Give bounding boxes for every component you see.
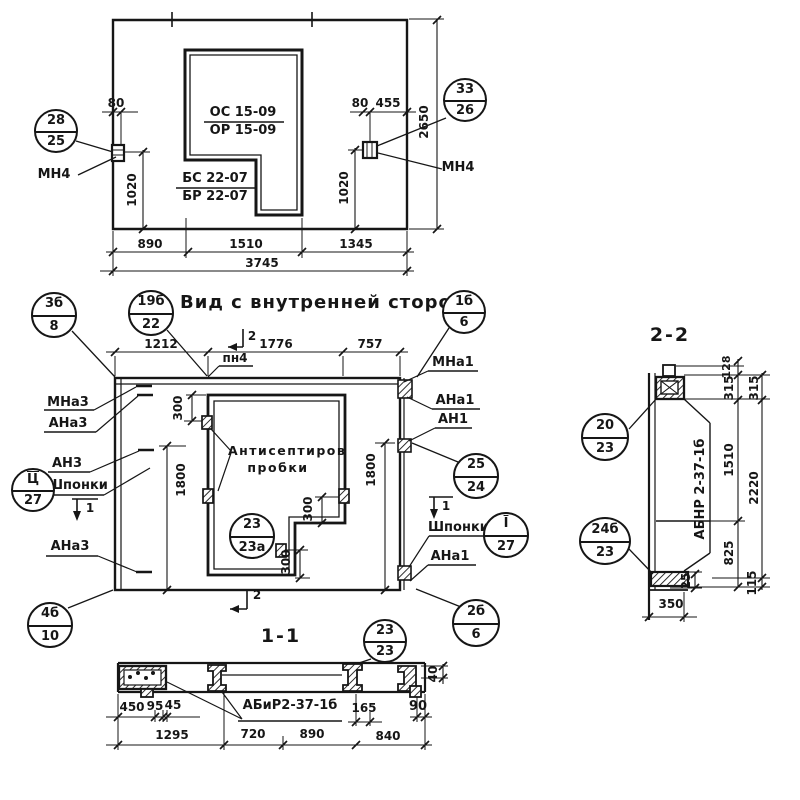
- callout-top: 2б: [454, 601, 498, 625]
- callout-top: 19б: [130, 292, 172, 315]
- dim-455: 455: [371, 96, 405, 110]
- callout-19b-22: 19б 22: [128, 290, 174, 336]
- section-marker-1-right: 1: [440, 499, 452, 513]
- callout-bottom: 27: [485, 537, 527, 557]
- callout-bottom: 26: [445, 102, 485, 121]
- note-antiseptic: Антисептиров: [228, 444, 340, 458]
- callout-28-25: 28 25: [34, 109, 78, 153]
- section-marker-2-top: 2: [245, 329, 259, 343]
- dim-350: 350: [654, 597, 688, 611]
- dim-3745: 3745: [240, 256, 284, 270]
- callout-top: I: [485, 514, 527, 537]
- note-plugs: пробки: [245, 461, 311, 475]
- dim-80-left: 80: [103, 96, 129, 110]
- dim-1020-right: 1020: [337, 168, 351, 208]
- drawing-linework: [0, 0, 800, 800]
- dim-890: 890: [133, 237, 167, 251]
- dim-1800-right: 1800: [364, 448, 378, 492]
- callout-33-26: 33 26: [443, 78, 487, 122]
- dim-300-mid: 300: [301, 491, 315, 527]
- label-shponki-right: Шпонки: [428, 521, 486, 535]
- callout-bottom: 6: [454, 625, 498, 646]
- section-2-2-title: 2-2: [645, 328, 695, 342]
- dim-757: 757: [352, 337, 388, 351]
- label-mna1: МНа1: [429, 356, 477, 370]
- callout-i-27: I 27: [483, 512, 529, 558]
- dim-1345: 1345: [336, 237, 376, 251]
- callout-bottom: 23: [583, 439, 627, 460]
- callout-bottom: 25: [36, 133, 76, 152]
- section-marker-1-left: 1: [84, 501, 96, 515]
- dim-25: 25: [679, 567, 693, 595]
- callout-top: 25: [455, 455, 497, 478]
- label-pn4: пн4: [219, 351, 251, 365]
- dim-300-bottom: 300: [279, 544, 293, 580]
- dim-450: 450: [117, 700, 147, 714]
- opening-mark-br: БР 22-07: [174, 190, 256, 204]
- label-ana1-bottom: АНа1: [426, 550, 474, 564]
- callout-1b-6: 1б 6: [442, 290, 486, 334]
- label-an3: АН3: [46, 457, 88, 471]
- dim-115: 115: [745, 567, 759, 599]
- dim-1020-left: 1020: [125, 170, 139, 210]
- callout-top: Ц: [13, 470, 53, 492]
- dim-165: 165: [349, 701, 379, 715]
- dim-720: 720: [234, 727, 272, 741]
- dim-300-top: 300: [171, 390, 185, 426]
- opening-mark-bs: БС 22-07: [174, 172, 256, 186]
- inner-view-linework: [44, 328, 484, 667]
- label-an1: АН1: [433, 413, 473, 427]
- callout-bottom: 8: [33, 317, 75, 337]
- dim-1510: 1510: [722, 440, 736, 480]
- callout-bottom: 22: [130, 315, 172, 335]
- dim-1510: 1510: [226, 237, 266, 251]
- dim-2650: 2650: [417, 102, 431, 142]
- label-ana3-top: АНа3: [43, 417, 93, 431]
- dim-825: 825: [722, 535, 736, 571]
- label-ana3-bottom: АНа3: [45, 540, 95, 554]
- opening-mark-or: ОР 15-09: [202, 124, 284, 138]
- dim-1295: 1295: [149, 728, 195, 742]
- dim-40: 40: [426, 656, 440, 692]
- dim-80-right: 80: [349, 96, 371, 110]
- label-ana1-top: АНа1: [431, 394, 479, 408]
- dim-1212: 1212: [141, 337, 181, 351]
- dim-2220: 2220: [747, 468, 761, 508]
- callout-bottom: 24: [455, 478, 497, 498]
- product-label-abir: АБиР2-37-1б: [237, 699, 343, 713]
- callout-23-23a: 23 23а: [229, 513, 275, 559]
- callout-top: 23: [231, 515, 273, 538]
- callout-20-23: 20 23: [581, 413, 629, 461]
- label-mna3: МНа3: [43, 396, 93, 410]
- blueprint-sheet: 28 25 33 26 МН4 МН4 ОС 15-09 ОР 15-09 БС…: [0, 0, 800, 800]
- dim-1800-left: 1800: [174, 458, 188, 502]
- callout-2b-6: 2б 6: [452, 599, 500, 647]
- callout-4b-10: 4б 10: [27, 602, 73, 648]
- callout-top: 1б: [444, 292, 484, 314]
- dim-315-inner: 315: [722, 372, 736, 404]
- view-title: Вид с внутренней стороны: [180, 296, 452, 310]
- callout-bottom: 27: [13, 492, 53, 511]
- callout-top: 4б: [29, 604, 71, 627]
- dim-315-outer: 315: [747, 372, 761, 404]
- callout-top: 33: [445, 80, 485, 102]
- anchor-label-mn4-left: МН4: [35, 168, 73, 182]
- product-label-abnr: АБНР 2-37-1б: [694, 434, 708, 544]
- callout-23-23: 23 23: [363, 619, 407, 663]
- dim-840: 840: [367, 729, 409, 743]
- callout-bottom: 10: [29, 627, 71, 647]
- callout-top: 23: [365, 621, 405, 643]
- callout-bottom: 23а: [231, 538, 273, 558]
- callout-top: 3б: [33, 294, 75, 317]
- callout-top: 20: [583, 415, 627, 439]
- section-marker-2-bottom: 2: [250, 588, 264, 602]
- section-1-1-title: 1-1: [256, 629, 306, 643]
- anchor-label-mn4-right: МН4: [439, 161, 477, 175]
- callout-top: 28: [36, 111, 76, 133]
- callout-bottom: 23: [581, 543, 629, 564]
- dim-1776: 1776: [256, 337, 296, 351]
- dim-890: 890: [291, 727, 333, 741]
- callout-top: 24б: [581, 519, 629, 543]
- dim-90: 90: [404, 700, 432, 714]
- callout-bottom: 6: [444, 314, 484, 333]
- callout-25-24: 25 24: [453, 453, 499, 499]
- label-shponki-left: Шпонки: [47, 479, 103, 493]
- callout-ts-27: Ц 27: [11, 468, 55, 512]
- opening-mark-os: ОС 15-09: [202, 106, 284, 120]
- callout-bottom: 23: [365, 643, 405, 662]
- callout-24b-23: 24б 23: [579, 517, 631, 565]
- dim-45: 45: [161, 698, 185, 712]
- callout-3b-8: 3б 8: [31, 292, 77, 338]
